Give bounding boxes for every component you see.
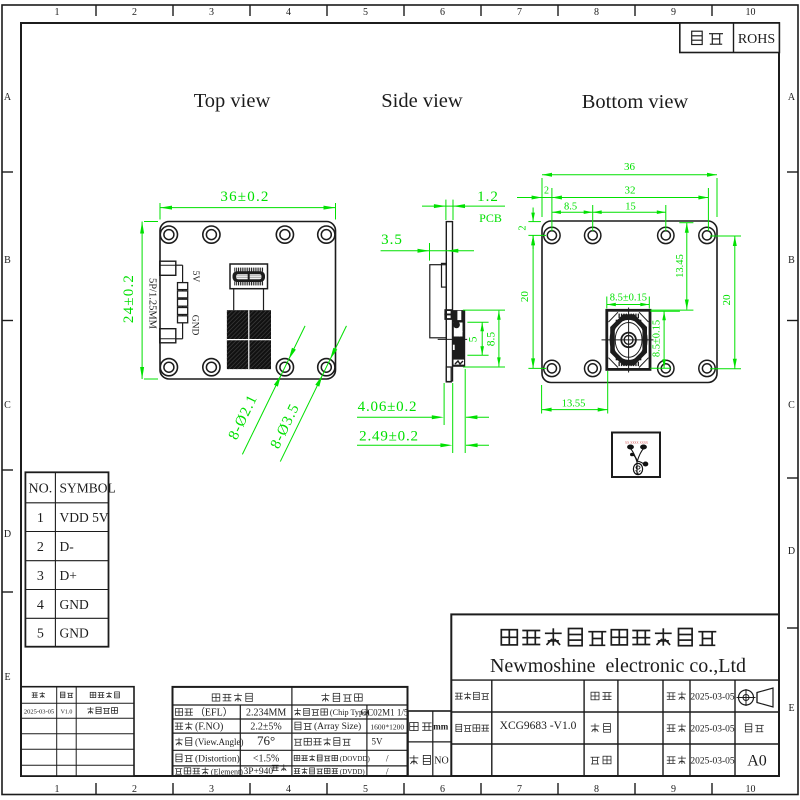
svg-text:C: C bbox=[4, 400, 11, 411]
svg-text:76°: 76° bbox=[257, 733, 275, 748]
svg-text:D: D bbox=[4, 529, 11, 540]
svg-text:5V: 5V bbox=[190, 271, 200, 283]
svg-text:A: A bbox=[788, 92, 796, 103]
svg-text:3: 3 bbox=[37, 569, 44, 584]
svg-text:5: 5 bbox=[363, 784, 368, 795]
svg-text:32: 32 bbox=[625, 185, 636, 197]
svg-text:15: 15 bbox=[625, 202, 636, 213]
svg-text:8: 8 bbox=[594, 7, 599, 18]
svg-text:V1.0: V1.0 bbox=[61, 710, 73, 716]
svg-text:9: 9 bbox=[671, 784, 676, 795]
svg-text:13.45: 13.45 bbox=[675, 254, 686, 278]
svg-text:3: 3 bbox=[209, 7, 214, 18]
svg-text:9: 9 bbox=[671, 7, 676, 18]
svg-text:A0: A0 bbox=[747, 753, 767, 770]
svg-text:2025-03-05: 2025-03-05 bbox=[690, 725, 735, 735]
svg-text:10: 10 bbox=[746, 7, 756, 18]
svg-text:E: E bbox=[4, 672, 10, 683]
svg-text:8: 8 bbox=[594, 784, 599, 795]
svg-text:5: 5 bbox=[37, 627, 44, 642]
svg-text:(DVDD): (DVDD) bbox=[340, 768, 366, 776]
svg-text:2: 2 bbox=[132, 784, 137, 795]
svg-text:1: 1 bbox=[55, 784, 60, 795]
svg-text:D: D bbox=[788, 546, 795, 557]
svg-text:2: 2 bbox=[37, 540, 44, 555]
svg-text:3: 3 bbox=[209, 784, 214, 795]
svg-text:/: / bbox=[386, 767, 389, 777]
svg-text:B: B bbox=[4, 255, 11, 266]
svg-text:8.5±0.15: 8.5±0.15 bbox=[651, 320, 662, 357]
svg-text:C: C bbox=[788, 400, 795, 411]
svg-text:2.234MM: 2.234MM bbox=[246, 708, 286, 719]
svg-text:2.49±0.2: 2.49±0.2 bbox=[359, 429, 419, 445]
svg-text:ROHS: ROHS bbox=[738, 32, 775, 47]
svg-text:20: 20 bbox=[519, 291, 531, 303]
svg-text:5: 5 bbox=[468, 336, 480, 342]
svg-text:6: 6 bbox=[440, 7, 445, 18]
svg-text:(Element): (Element) bbox=[211, 767, 243, 776]
svg-text:B: B bbox=[788, 255, 795, 266]
svg-text:1: 1 bbox=[37, 511, 44, 526]
svg-text:20: 20 bbox=[721, 294, 733, 306]
svg-text:2.2±5%: 2.2±5% bbox=[250, 722, 281, 733]
svg-text:8.5: 8.5 bbox=[485, 332, 497, 347]
svg-text:(Array Size): (Array Size) bbox=[314, 721, 361, 732]
svg-text:(F.NO): (F.NO) bbox=[195, 722, 223, 733]
svg-text:4: 4 bbox=[37, 598, 44, 613]
svg-text:(Distortion): (Distortion) bbox=[195, 754, 240, 765]
svg-text:36: 36 bbox=[624, 161, 636, 173]
svg-text:NO.: NO. bbox=[29, 482, 53, 497]
svg-text:A: A bbox=[4, 92, 12, 103]
svg-text:2025-03-05: 2025-03-05 bbox=[24, 709, 54, 716]
svg-text:D-: D- bbox=[60, 539, 75, 554]
svg-text:1600*1200: 1600*1200 bbox=[370, 723, 404, 732]
svg-text:2: 2 bbox=[518, 226, 529, 231]
svg-text:（EFL）: （EFL） bbox=[195, 707, 233, 719]
svg-text:GND: GND bbox=[60, 626, 89, 641]
svg-text:8.5±0.15: 8.5±0.15 bbox=[610, 293, 647, 304]
svg-text:<1.5%: <1.5% bbox=[253, 754, 279, 765]
svg-text:PCB: PCB bbox=[479, 211, 502, 225]
svg-text:VDD 5V: VDD 5V bbox=[60, 510, 109, 525]
svg-text:4.06±0.2: 4.06±0.2 bbox=[358, 399, 418, 415]
svg-text:E: E bbox=[788, 703, 794, 714]
svg-text:24±0.2: 24±0.2 bbox=[121, 274, 137, 323]
svg-text:XCG9683 -V1.0: XCG9683 -V1.0 bbox=[500, 720, 577, 732]
svg-text:4: 4 bbox=[286, 7, 291, 18]
svg-text:5: 5 bbox=[363, 7, 368, 18]
svg-text:2: 2 bbox=[132, 7, 137, 18]
svg-text:1.2: 1.2 bbox=[477, 189, 499, 205]
svg-text:xx xxxx xxxx: xx xxxx xxxx bbox=[625, 440, 649, 445]
svg-text:(DOVDD): (DOVDD) bbox=[340, 755, 371, 763]
svg-text:10: 10 bbox=[746, 784, 756, 795]
svg-text:/: / bbox=[386, 755, 389, 765]
svg-text:8.5: 8.5 bbox=[564, 202, 577, 213]
svg-text:6: 6 bbox=[440, 784, 445, 795]
svg-text:(View.Angle): (View.Angle) bbox=[195, 737, 244, 747]
svg-text:Newmoshine electronic co.,Ltd: Newmoshine electronic co.,Ltd bbox=[490, 655, 746, 677]
svg-text:Top view: Top view bbox=[194, 90, 271, 112]
svg-text:13.55: 13.55 bbox=[562, 398, 586, 409]
svg-text:5P/1.25MM: 5P/1.25MM bbox=[146, 278, 157, 330]
svg-text:2025-03-05: 2025-03-05 bbox=[690, 693, 735, 703]
svg-text:GND: GND bbox=[60, 597, 89, 612]
svg-text:2025-03-05: 2025-03-05 bbox=[690, 757, 735, 767]
svg-text:4: 4 bbox=[286, 784, 291, 795]
svg-text:2: 2 bbox=[544, 186, 549, 197]
svg-text:Bottom view: Bottom view bbox=[582, 91, 689, 113]
svg-text:GC02M1 1/5: GC02M1 1/5 bbox=[361, 708, 409, 718]
svg-text:GND: GND bbox=[189, 315, 199, 336]
svg-text:mm: mm bbox=[433, 722, 448, 732]
svg-text:1: 1 bbox=[55, 7, 60, 18]
svg-text:5V: 5V bbox=[372, 737, 384, 747]
svg-text:36±0.2: 36±0.2 bbox=[220, 189, 269, 205]
svg-text:3.5: 3.5 bbox=[381, 232, 403, 248]
svg-text:SYMBOL: SYMBOL bbox=[60, 481, 116, 496]
svg-text:NO: NO bbox=[434, 756, 448, 767]
svg-text:D+: D+ bbox=[60, 568, 77, 583]
svg-text:7: 7 bbox=[517, 784, 522, 795]
svg-text:7: 7 bbox=[517, 7, 522, 18]
svg-text:3P+940: 3P+940 bbox=[244, 767, 274, 777]
svg-text:Side view: Side view bbox=[381, 90, 463, 112]
